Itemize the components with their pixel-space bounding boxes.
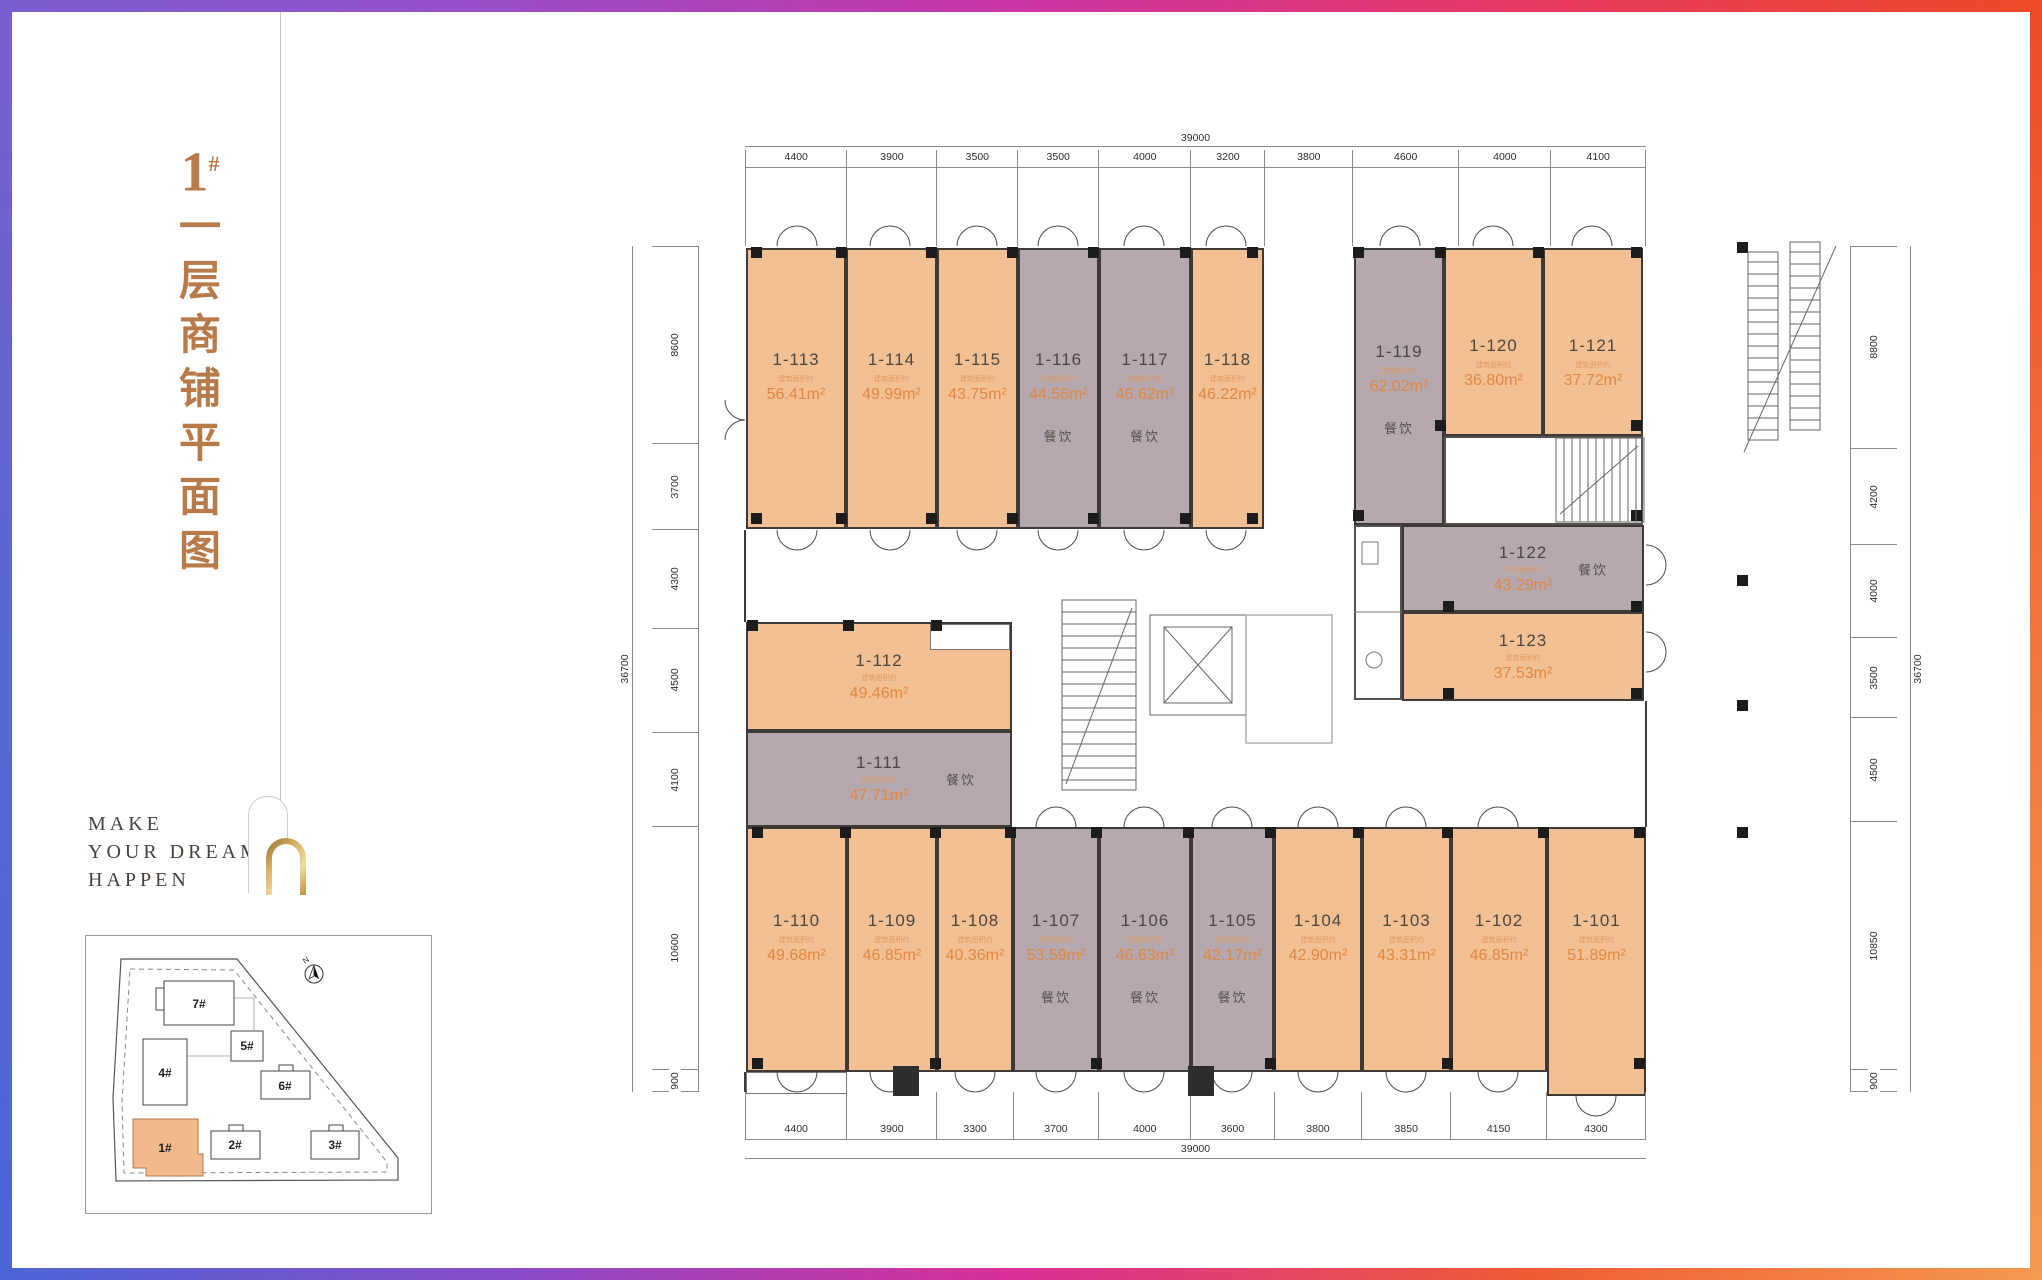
hash-mark: # bbox=[209, 151, 220, 176]
unit-1-113: 1-113 建筑面积约 56.41m² bbox=[746, 248, 846, 529]
unit-1-120: 1-120 建筑面积约 36.80m² bbox=[1444, 248, 1543, 436]
unit-1-102: 1-102 建筑面积约 46.85m² bbox=[1451, 827, 1547, 1072]
restroom bbox=[1354, 525, 1402, 700]
dimension-bottom-line bbox=[745, 1139, 1646, 1140]
title-characters: 一 层 商 铺 平 面 图 bbox=[160, 201, 240, 579]
unit-1-103: 1-103 建筑面积约 43.31m² bbox=[1362, 827, 1451, 1072]
site-key-map: N 7# 5# 4# 6# 1# 2# 3# bbox=[85, 935, 432, 1214]
floor-plan-page: 1# 一 层 商 铺 平 面 图 MAKE YOUR DREAMS HAPPEN bbox=[0, 0, 2042, 1280]
escalator-drawing bbox=[1744, 242, 1836, 452]
unit-1-116: 1-116 建筑面积约 44.56m² 餐饮 bbox=[1018, 248, 1099, 529]
unit-1-123: 1-123 建筑面积约 37.53m² bbox=[1402, 612, 1644, 701]
frame-right bbox=[2030, 0, 2042, 1280]
unit-1-104: 1-104 建筑面积约 42.90m² bbox=[1274, 827, 1362, 1072]
unit-1-119: 1-119 建筑面积约 62.02m² 餐饮 bbox=[1354, 248, 1444, 525]
elevator-drawing bbox=[1150, 615, 1332, 743]
frame-top bbox=[0, 0, 2042, 12]
dimension-bottom-total: 39000 bbox=[745, 1158, 1646, 1160]
dimension-right-total: 36700 bbox=[1910, 246, 1925, 1092]
site-building-3: 3# bbox=[328, 1138, 342, 1152]
site-building-4: 4# bbox=[158, 1066, 172, 1080]
dimension-top-segments: 4400 3900 3500 3500 4000 3200 3800 4600 … bbox=[745, 150, 1646, 246]
unit-1-101: 1-101 建筑面积约 51.89m² bbox=[1547, 827, 1646, 1096]
unit-1-117: 1-117 建筑面积约 46.62m² 餐饮 bbox=[1099, 248, 1191, 529]
vertical-divider bbox=[280, 12, 281, 848]
stair-room-b bbox=[1444, 436, 1643, 525]
unit-1-118: 1-118 建筑面积约 46.22m² bbox=[1191, 248, 1264, 529]
site-building-2: 2# bbox=[228, 1138, 242, 1152]
site-building-7: 7# bbox=[192, 997, 206, 1011]
dimension-top-line bbox=[745, 167, 1646, 168]
unit-1-110: 1-110 建筑面积约 49.68m² bbox=[746, 827, 847, 1072]
entry-porch-left bbox=[746, 1072, 847, 1094]
dimension-top-total: 39000 bbox=[745, 146, 1646, 148]
dimension-bottom-segments: 4400 3900 3300 3700 4000 3600 3800 3850 … bbox=[745, 1092, 1646, 1140]
north-label: N bbox=[301, 955, 311, 966]
unit-1-121: 1-121 建筑面积约 37.72m² bbox=[1543, 248, 1643, 436]
building-number: 1# bbox=[160, 136, 240, 201]
dimension-left-segments: 8600 3700 4300 4500 4100 10600 900 bbox=[652, 246, 699, 1092]
unit-1-115: 1-115 建筑面积约 43.75m² bbox=[937, 248, 1018, 529]
unit-1-122: 1-122 建筑面积约 43.29m² 餐饮 bbox=[1402, 525, 1644, 612]
stair-drawing bbox=[1062, 600, 1136, 790]
site-building-5: 5# bbox=[240, 1039, 254, 1053]
closet-room bbox=[930, 624, 1010, 650]
site-building-6: 6# bbox=[278, 1079, 292, 1093]
arch-logo-gold-icon bbox=[266, 838, 306, 895]
site-map-drawing: N 7# 5# 4# 6# 1# 2# 3# bbox=[86, 936, 429, 1211]
unit-1-114: 1-114 建筑面积约 49.99m² bbox=[846, 248, 937, 529]
site-building-1: 1# bbox=[158, 1141, 172, 1155]
frame-bottom bbox=[0, 1268, 2042, 1280]
dimension-right-segments: 8800 4200 4000 3500 4500 10850 900 bbox=[1850, 246, 1897, 1092]
unit-1-111: 1-111 建筑面积约 47.71m² 餐饮 bbox=[746, 731, 1012, 827]
frame-left bbox=[0, 0, 12, 1280]
unit-1-105: 1-105 建筑面积约 42.17m² 餐饮 bbox=[1191, 827, 1274, 1072]
page-title: 1# 一 层 商 铺 平 面 图 bbox=[160, 136, 240, 579]
unit-1-108: 1-108 建筑面积约 40.36m² bbox=[937, 827, 1013, 1072]
unit-1-107: 1-107 建筑面积约 53.59m² 餐饮 bbox=[1013, 827, 1099, 1072]
unit-1-109: 1-109 建筑面积约 46.85m² bbox=[847, 827, 937, 1072]
north-compass-icon: N bbox=[301, 955, 323, 983]
unit-1-106: 1-106 建筑面积约 46.63m² 餐饮 bbox=[1099, 827, 1191, 1072]
dimension-left-total: 36700 bbox=[618, 246, 633, 1092]
